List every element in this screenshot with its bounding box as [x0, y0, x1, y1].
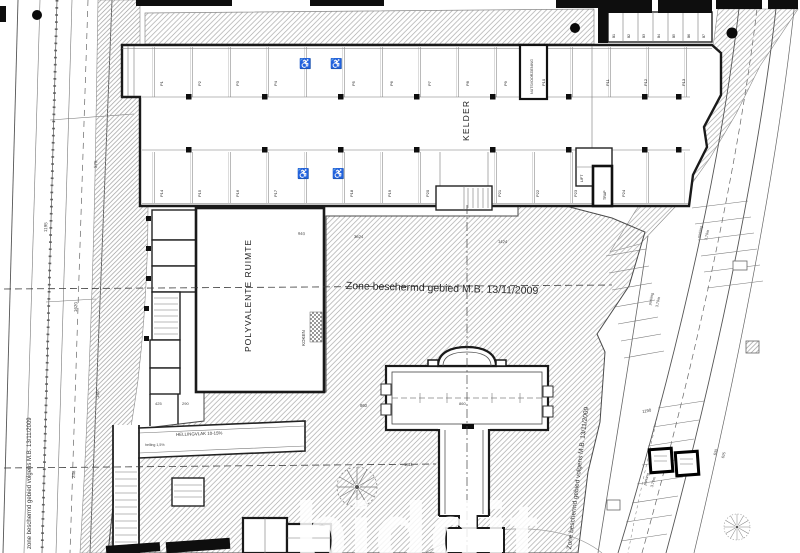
top-strip-hatch — [145, 9, 594, 44]
watermark-biddit: biddit — [294, 490, 539, 553]
polyvalente-ruimte — [196, 208, 324, 392]
tree-icon-small — [724, 514, 750, 540]
outbuildings — [649, 448, 699, 475]
polyvalente-ruimte-label: POLYVALENTE RUIMTE — [244, 239, 253, 352]
stair-core — [593, 166, 612, 206]
koken-unit — [310, 312, 322, 342]
helling-percent-label: helling 1,5% — [145, 444, 165, 448]
koken-label: KOKEN — [302, 330, 307, 346]
plan-linework: .ln{stroke:#555;stroke-width:.9;fill:non… — [0, 0, 800, 553]
nutsvoorziening-label: NUTSVOORZIENING — [531, 59, 535, 94]
protected-zone-left-label: zone beschermd gebied volgens M.B. 13/11… — [27, 417, 33, 549]
site-plan-drawing: .ln{stroke:#555;stroke-width:.9;fill:non… — [0, 0, 800, 553]
kelder-label: KELDER — [462, 100, 471, 141]
